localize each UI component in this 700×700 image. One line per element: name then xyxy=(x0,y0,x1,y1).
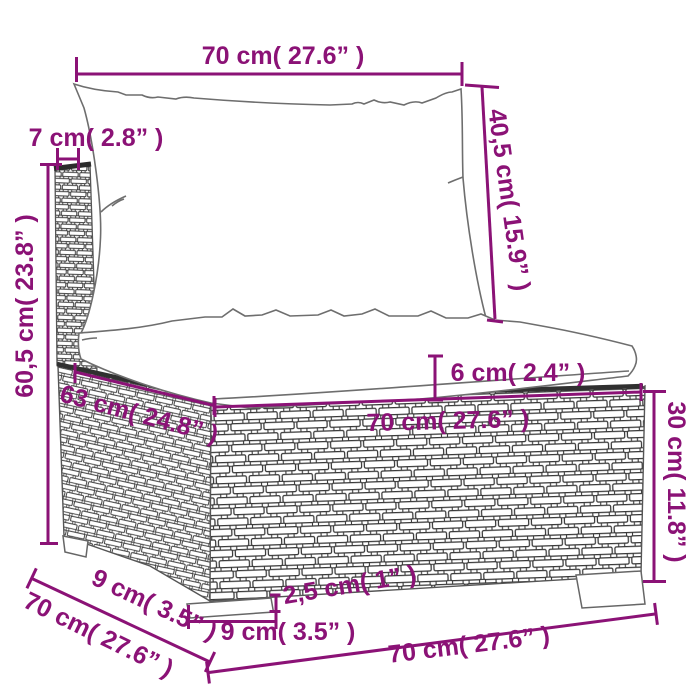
svg-text:70 cm( 27.6” ): 70 cm( 27.6” ) xyxy=(366,405,529,437)
svg-text:70 cm( 27.6” ): 70 cm( 27.6” ) xyxy=(202,42,365,70)
svg-text:30 cm( 11.8” ): 30 cm( 11.8” ) xyxy=(662,401,690,562)
svg-text:6 cm( 2.4” ): 6 cm( 2.4” ) xyxy=(451,359,586,387)
svg-text:60,5 cm( 23.8” ): 60,5 cm( 23.8” ) xyxy=(11,214,39,397)
svg-text:7 cm( 2.8” ): 7 cm( 2.8” ) xyxy=(29,124,164,152)
svg-text:9 cm( 3.5” ): 9 cm( 3.5” ) xyxy=(221,618,356,646)
